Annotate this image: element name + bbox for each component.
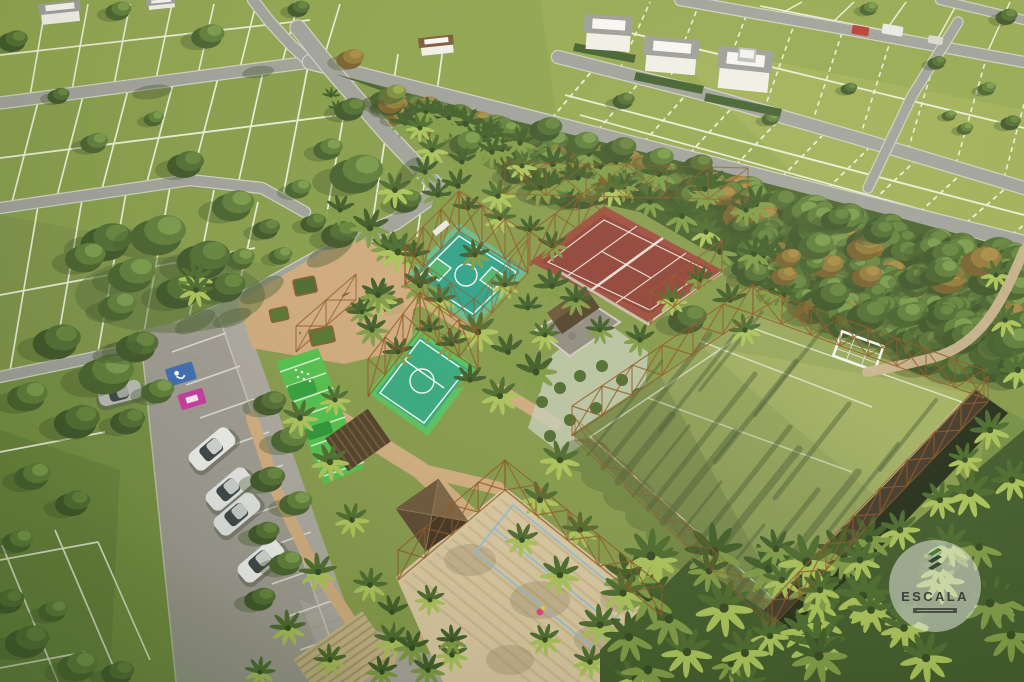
svg-text:ESCALA: ESCALA	[901, 589, 969, 604]
